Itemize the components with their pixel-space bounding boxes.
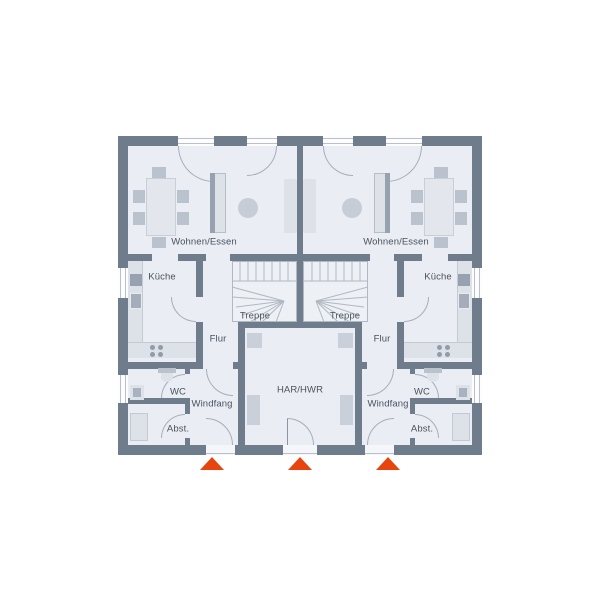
floor-plan: Wohnen/Essen Wohnen/Essen Küche Küche Tr… bbox=[118, 136, 482, 455]
window-icon bbox=[386, 136, 422, 146]
window-icon bbox=[178, 136, 214, 146]
entrance-door-opening bbox=[365, 445, 394, 455]
entrance-arrow-icon bbox=[376, 457, 400, 470]
entrance-arrow-icon bbox=[288, 457, 312, 470]
room-label-stairs-right: Treppe bbox=[330, 311, 360, 322]
room-label-hall-left: Flur bbox=[210, 334, 227, 345]
window-icon bbox=[118, 375, 128, 403]
room-label-storage-left: Abst. bbox=[167, 424, 189, 435]
entrance-arrow-icon bbox=[200, 457, 224, 470]
room-label-wc-left: WC bbox=[170, 387, 186, 398]
window-icon bbox=[247, 136, 277, 146]
room-label-living-left: Wohnen/Essen bbox=[171, 237, 236, 248]
labels-layer: Wohnen/Essen Wohnen/Essen Küche Küche Tr… bbox=[128, 146, 472, 445]
room-label-living-right: Wohnen/Essen bbox=[363, 237, 428, 248]
room-label-kitchen-right: Küche bbox=[424, 272, 451, 283]
floor-plan-canvas: Wohnen/Essen Wohnen/Essen Küche Küche Tr… bbox=[0, 0, 600, 600]
utility-door-opening bbox=[283, 445, 317, 455]
room-label-wc-right: WC bbox=[414, 387, 430, 398]
window-icon bbox=[323, 136, 353, 146]
room-label-hall-right: Flur bbox=[374, 334, 391, 345]
room-label-storage-right: Abst. bbox=[411, 424, 433, 435]
window-icon bbox=[118, 268, 128, 298]
room-label-utility: HAR/HWR bbox=[277, 385, 323, 396]
entrance-door-opening bbox=[206, 445, 235, 455]
window-icon bbox=[472, 375, 482, 403]
window-icon bbox=[472, 268, 482, 298]
room-label-stairs-left: Treppe bbox=[240, 311, 270, 322]
room-label-vestibule-right: Windfang bbox=[368, 399, 409, 410]
room-label-vestibule-left: Windfang bbox=[192, 399, 233, 410]
room-label-kitchen-left: Küche bbox=[148, 272, 175, 283]
